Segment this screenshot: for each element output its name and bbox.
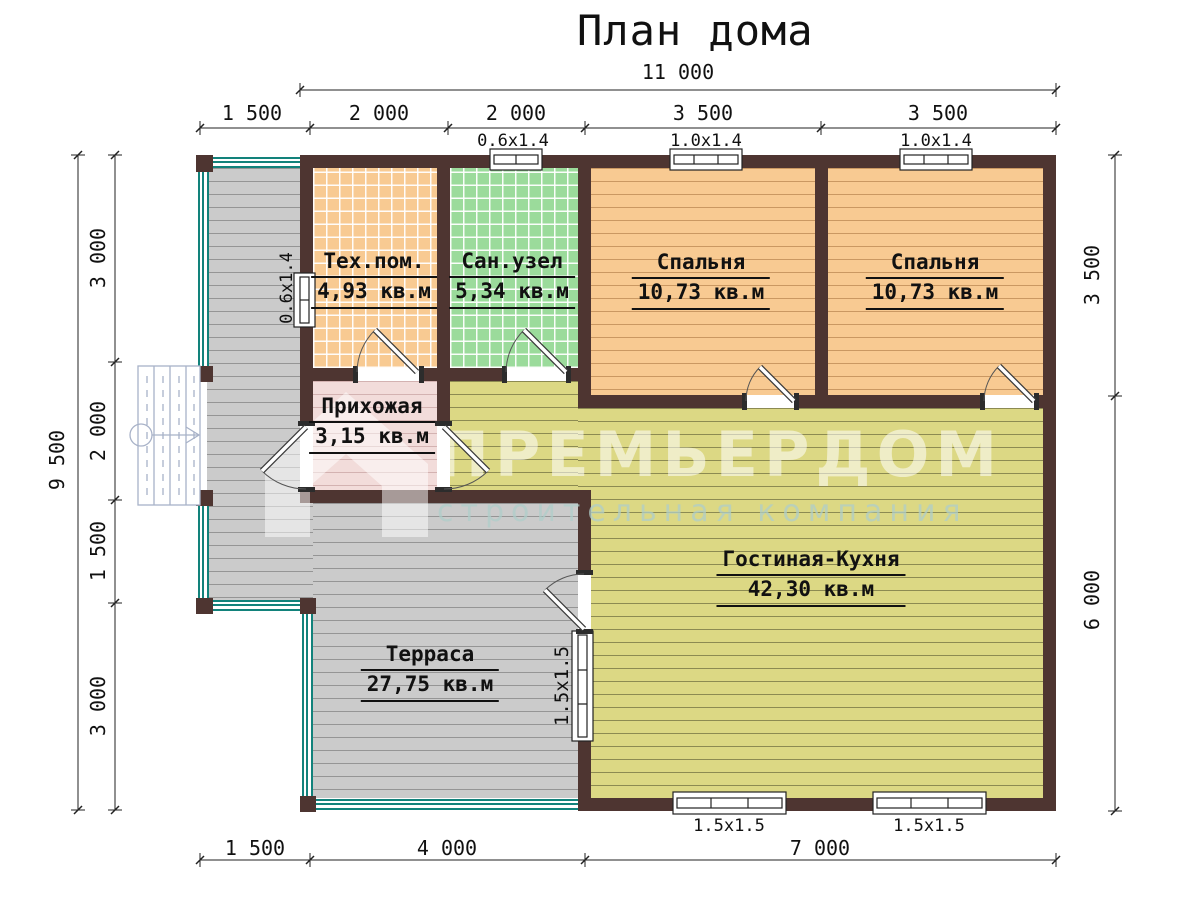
dim-window-tech: 0.6x1.4 xyxy=(277,243,297,333)
dim-top-seg-1: 1 500 xyxy=(192,101,312,125)
room-area: 3,15 кв.м xyxy=(309,423,435,453)
dim-top-seg-5: 3 500 xyxy=(878,101,998,125)
dim-top-seg-3: 2 000 xyxy=(456,101,576,125)
dim-left-total: 9 500 xyxy=(45,405,69,515)
door-arc-hall-terrace xyxy=(262,471,306,489)
room-name: Сан.узел xyxy=(449,248,575,278)
floor-plan-canvas: План дома ПРЕМЬЕРДОМ строительная компан… xyxy=(0,0,1200,900)
door-arc-tech xyxy=(357,330,375,372)
dim-window-living: 1.5x1.5 xyxy=(551,636,573,736)
dim-top-seg-4: 3 500 xyxy=(643,101,763,125)
dim-bottom-seg-2: 4 000 xyxy=(387,836,507,860)
window-bedroom1-top xyxy=(670,149,742,170)
dim-bottom-seg-3: 7 000 xyxy=(760,836,880,860)
dim-bottom-seg-1: 1 500 xyxy=(195,836,315,860)
dim-right-seg-2: 6 000 xyxy=(1080,545,1104,655)
window-living-terrace xyxy=(572,631,593,741)
room-label-terrace: Терраса 27,75 кв.м xyxy=(361,641,499,702)
room-name: Тех.пом. xyxy=(311,248,437,278)
room-area: 10,73 кв.м xyxy=(866,279,1004,309)
dim-window-top-3: 1.0x1.4 xyxy=(886,131,986,151)
dim-window-top-1: 0.6x1.4 xyxy=(463,131,563,151)
room-name: Спальня xyxy=(632,249,770,279)
room-area: 27,75 кв.м xyxy=(361,671,499,701)
room-area: 5,34 кв.м xyxy=(449,278,575,308)
dimension-lines xyxy=(78,90,1115,860)
room-area: 10,73 кв.м xyxy=(632,279,770,309)
window-bedroom2-top xyxy=(900,149,972,170)
room-label-hall: Прихожая 3,15 кв.м xyxy=(309,393,435,454)
dim-left-seg-1: 3 000 xyxy=(86,203,110,313)
room-label-tech: Тех.пом. 4,93 кв.м xyxy=(311,248,437,309)
room-name: Спальня xyxy=(866,249,1004,279)
room-label-bedroom2: Спальня 10,73 кв.м xyxy=(866,249,1004,310)
dim-left-seg-4: 3 000 xyxy=(86,651,110,761)
window-living-bottom-1 xyxy=(673,792,786,814)
plan-geometry-overlay xyxy=(0,0,1200,900)
dim-left-seg-2: 2 000 xyxy=(86,376,110,486)
dim-window-bottom-2: 1.5x1.5 xyxy=(879,816,979,836)
dim-window-top-2: 1.0x1.4 xyxy=(656,131,756,151)
dim-left-seg-3: 1 500 xyxy=(86,496,110,606)
dimension-ticks xyxy=(71,83,1122,867)
window-san-top xyxy=(490,149,542,170)
dim-top-seg-2: 2 000 xyxy=(319,101,439,125)
room-name: Гостиная-Кухня xyxy=(716,546,905,576)
room-label-bedroom1: Спальня 10,73 кв.м xyxy=(632,249,770,310)
dim-window-bottom-1: 1.5x1.5 xyxy=(679,816,779,836)
dim-right-seg-1: 3 500 xyxy=(1080,220,1104,330)
window-living-bottom-2 xyxy=(873,792,986,814)
room-label-living: Гостиная-Кухня 42,30 кв.м xyxy=(716,546,905,607)
room-label-san: Сан.узел 5,34 кв.м xyxy=(449,248,575,309)
door-arc-san xyxy=(506,330,524,372)
room-name: Терраса xyxy=(361,641,499,671)
dimension-tick-slashes xyxy=(74,86,1119,864)
dim-top-total: 11 000 xyxy=(608,60,748,84)
room-name: Прихожая xyxy=(309,393,435,423)
room-area: 4,93 кв.м xyxy=(311,278,437,308)
entrance-stairs xyxy=(130,366,200,505)
room-area: 42,30 кв.м xyxy=(716,576,905,606)
door-arc-hall-living xyxy=(444,471,488,489)
